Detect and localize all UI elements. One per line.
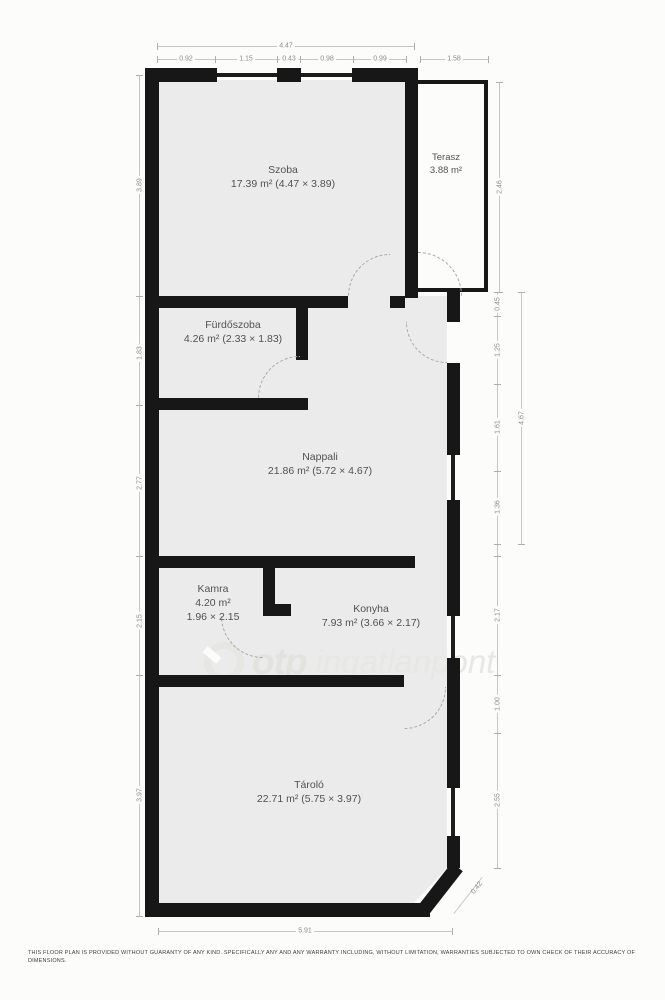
- dim-tick: [420, 56, 421, 63]
- room-label-terasz: Terasz 3.88 m²: [407, 152, 485, 178]
- wall-bottom: [145, 903, 430, 917]
- room-dims: 1.96 × 2.15: [187, 611, 240, 623]
- dim-tick: [518, 292, 525, 293]
- room-size: 7.93 m² (3.66 × 2.17): [322, 617, 420, 629]
- room-size: 22.71 m² (5.75 × 3.97): [257, 793, 361, 805]
- wall-right-4: [447, 658, 460, 788]
- wall-nappali-bottom: [145, 556, 415, 568]
- room-name: Tároló: [209, 778, 409, 792]
- wall-right-3: [447, 500, 460, 616]
- dim-left-1: 3.89: [137, 176, 144, 194]
- dim-top-seg-2: 1.15: [237, 56, 255, 63]
- terasz-wall-top: [418, 80, 488, 84]
- dim-tick: [494, 384, 501, 385]
- room-size: 21.86 m² (5.72 × 4.67): [268, 465, 372, 477]
- dim-bottom-total: 5.91: [296, 928, 314, 935]
- dim-tick: [488, 56, 489, 63]
- room-name: Fürdőszoba: [150, 318, 316, 332]
- room-label-konyha: Konyha 7.93 m² (3.66 × 2.17): [271, 602, 471, 630]
- dim-tick: [406, 56, 407, 63]
- dim-tick: [353, 56, 354, 63]
- wall-bathroom-bottom: [145, 398, 308, 410]
- wall-top-a: [145, 68, 217, 82]
- disclaimer-line-2: DIMENSIONS.: [28, 957, 640, 965]
- dim-terasz-height: 2.46: [497, 178, 504, 196]
- dim-top-seg-5: 0.99: [371, 56, 389, 63]
- dim-tick: [494, 292, 501, 293]
- dim-tick: [136, 296, 143, 297]
- dim-tick: [136, 916, 143, 917]
- dim-tick: [136, 405, 143, 406]
- dim-nappali-right-total: 4.67: [519, 409, 526, 427]
- dim-tick: [494, 868, 501, 869]
- dim-tick: [136, 556, 143, 557]
- room-label-tarolo: Tároló 22.71 m² (5.75 × 3.97): [209, 778, 409, 806]
- room-size: 4.20 m²: [163, 596, 263, 610]
- dim-right-seg-3: 1.61: [495, 418, 502, 436]
- dim-tick: [452, 928, 453, 935]
- wall-right-1: [447, 288, 460, 322]
- dim-tick: [518, 544, 525, 545]
- terasz-wall-right: [484, 80, 488, 292]
- room-label-szoba: Szoba 17.39 m² (4.47 × 3.89): [183, 163, 383, 191]
- room-size: 3.88 m²: [430, 165, 462, 176]
- dim-tarolo-right-1: 1.00: [495, 695, 502, 713]
- window-top-2: [301, 73, 352, 77]
- dim-tick: [494, 675, 501, 676]
- window-right-1: [451, 455, 455, 500]
- dim-right-seg-4: 1.36: [495, 498, 502, 516]
- wall-konyha-bottom: [145, 675, 404, 687]
- wall-left: [145, 68, 159, 917]
- dim-tick: [277, 56, 278, 63]
- room-name: Nappali: [220, 450, 420, 464]
- dim-tick: [300, 56, 301, 63]
- dim-tick: [157, 43, 158, 50]
- room-name: Terasz: [407, 152, 485, 165]
- dim-left-5: 3.97: [137, 786, 144, 804]
- wall-top-b: [277, 68, 301, 82]
- wall-szoba-bottom-stub: [390, 296, 405, 308]
- dim-tick: [215, 56, 216, 63]
- dim-line: [497, 292, 498, 868]
- dim-tick: [496, 82, 503, 83]
- dim-top-seg-1: 0.92: [177, 56, 195, 63]
- dim-chamfer: 0.42: [469, 879, 485, 897]
- room-label-kamra: Kamra 4.20 m² 1.96 × 2.15: [163, 582, 263, 625]
- dim-terasz-width: 1.58: [445, 56, 463, 63]
- otp-logo-swirl: [203, 646, 222, 664]
- room-size: 4.26 m² (2.33 × 1.83): [184, 333, 282, 345]
- room-size: 17.39 m² (4.47 × 3.89): [231, 178, 335, 190]
- dim-tick: [414, 43, 415, 50]
- room-name: Szoba: [183, 163, 383, 177]
- wall-szoba-terasz: [405, 68, 418, 298]
- floor-plan: otp ingatlanpont Szoba 17.39 m² (4.47 ×: [0, 0, 665, 1000]
- dim-left-2: 1.83: [137, 344, 144, 362]
- dim-tarolo-right-2: 2.55: [495, 791, 502, 809]
- dim-tick: [494, 556, 501, 557]
- dim-top-total: 4.47: [277, 43, 295, 50]
- dim-tick: [494, 544, 501, 545]
- dim-right-seg-2: 1.25: [495, 341, 502, 359]
- wall-right-2: [447, 363, 460, 455]
- dim-top-seg-4: 0.98: [318, 56, 336, 63]
- dim-tick: [158, 928, 159, 935]
- disclaimer: THIS FLOOR PLAN IS PROVIDED WITHOUT GUAR…: [28, 949, 640, 966]
- dim-tick: [136, 675, 143, 676]
- dim-tick: [494, 733, 501, 734]
- room-label-furdoszoba: Fürdőszoba 4.26 m² (2.33 × 1.83): [150, 318, 316, 346]
- dim-left-4: 2.15: [137, 612, 144, 630]
- room-name: Konyha: [271, 602, 471, 616]
- window-top-1: [217, 73, 277, 77]
- dim-konyha-right: 2.17: [495, 606, 502, 624]
- dim-right-seg-1: 0.45: [495, 295, 502, 313]
- wall-szoba-bottom: [145, 296, 348, 308]
- room-name: Kamra: [163, 582, 263, 596]
- window-right-3: [451, 788, 455, 836]
- dim-tick: [157, 56, 158, 63]
- dim-top-seg-3: 0.43: [280, 56, 298, 63]
- room-label-nappali: Nappali 21.86 m² (5.72 × 4.67): [220, 450, 420, 478]
- dim-tick: [136, 75, 143, 76]
- dim-tick: [494, 471, 501, 472]
- disclaimer-line-1: THIS FLOOR PLAN IS PROVIDED WITHOUT GUAR…: [28, 949, 640, 957]
- dim-tick: [494, 316, 501, 317]
- dim-left-3: 2.77: [137, 474, 144, 492]
